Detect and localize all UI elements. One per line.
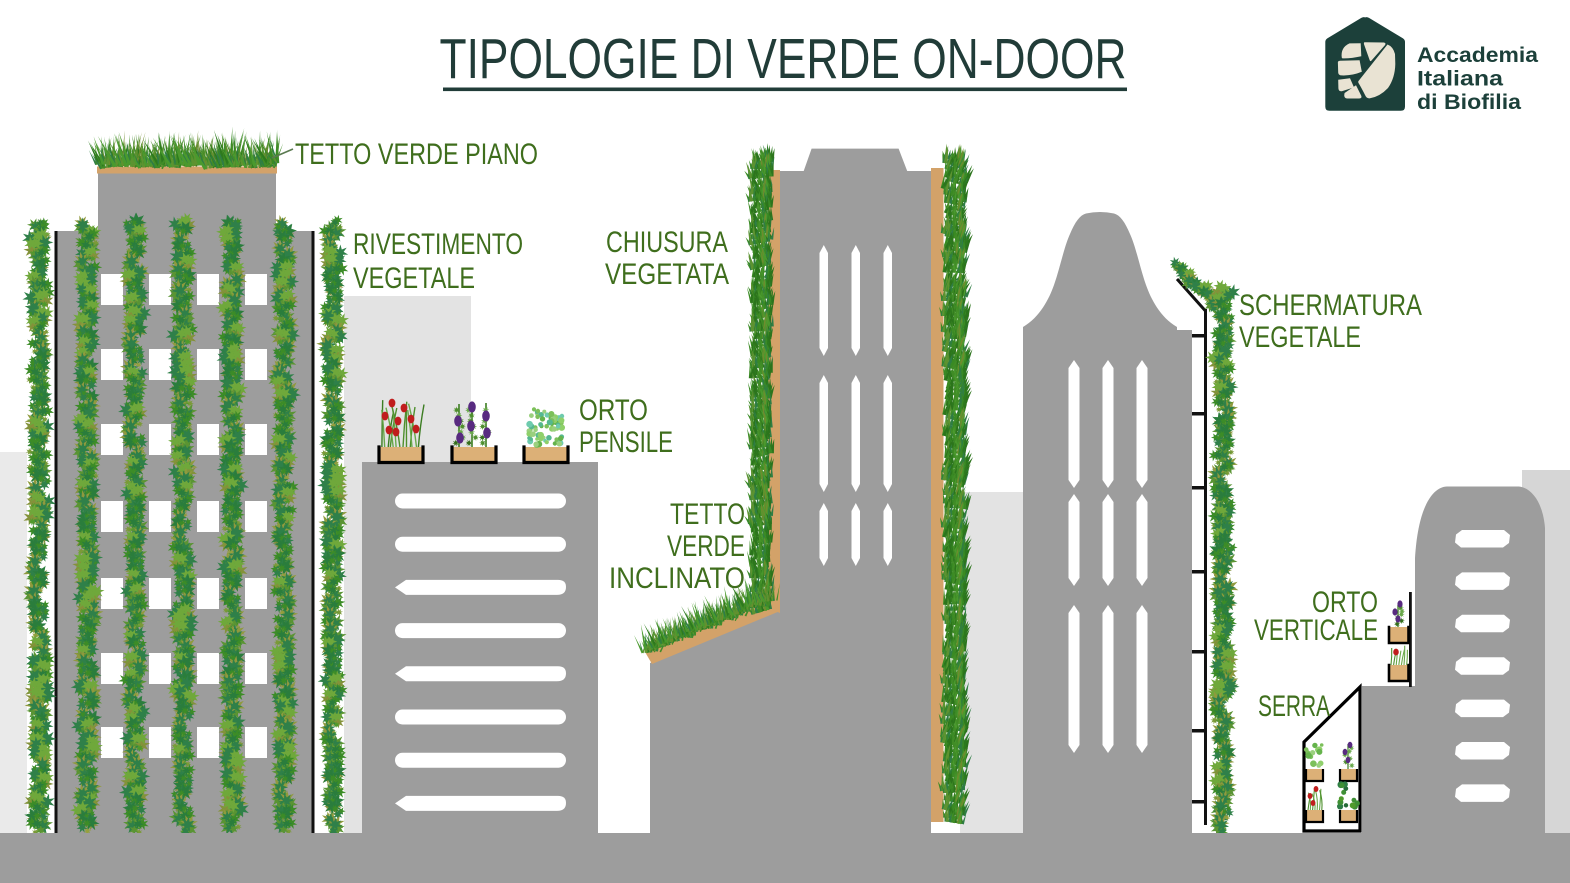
svg-text:TETTO: TETTO	[670, 498, 745, 531]
svg-text:TIPOLOGIE DI VERDE ON-DOOR: TIPOLOGIE DI VERDE ON-DOOR	[440, 27, 1127, 91]
svg-text:INCLINATO: INCLINATO	[609, 562, 745, 595]
svg-text:ORTO: ORTO	[579, 394, 648, 427]
svg-text:PENSILE: PENSILE	[579, 426, 673, 459]
svg-text:VERTICALE: VERTICALE	[1254, 614, 1378, 647]
svg-text:CHIUSURA: CHIUSURA	[606, 226, 728, 259]
svg-text:VEGETALE: VEGETALE	[353, 262, 475, 295]
svg-text:di Biofilia: di Biofilia	[1417, 90, 1522, 114]
svg-text:VEGETALE: VEGETALE	[1239, 321, 1361, 354]
svg-text:VEGETATA: VEGETATA	[605, 258, 729, 291]
svg-text:Italiana: Italiana	[1417, 67, 1504, 91]
svg-text:Accademia: Accademia	[1417, 43, 1539, 67]
svg-text:RIVESTIMENTO: RIVESTIMENTO	[353, 228, 523, 261]
svg-text:SERRA: SERRA	[1258, 690, 1330, 723]
svg-text:TETTO VERDE PIANO: TETTO VERDE PIANO	[295, 138, 538, 171]
svg-text:SCHERMATURA: SCHERMATURA	[1239, 289, 1422, 322]
svg-text:VERDE: VERDE	[667, 530, 745, 563]
